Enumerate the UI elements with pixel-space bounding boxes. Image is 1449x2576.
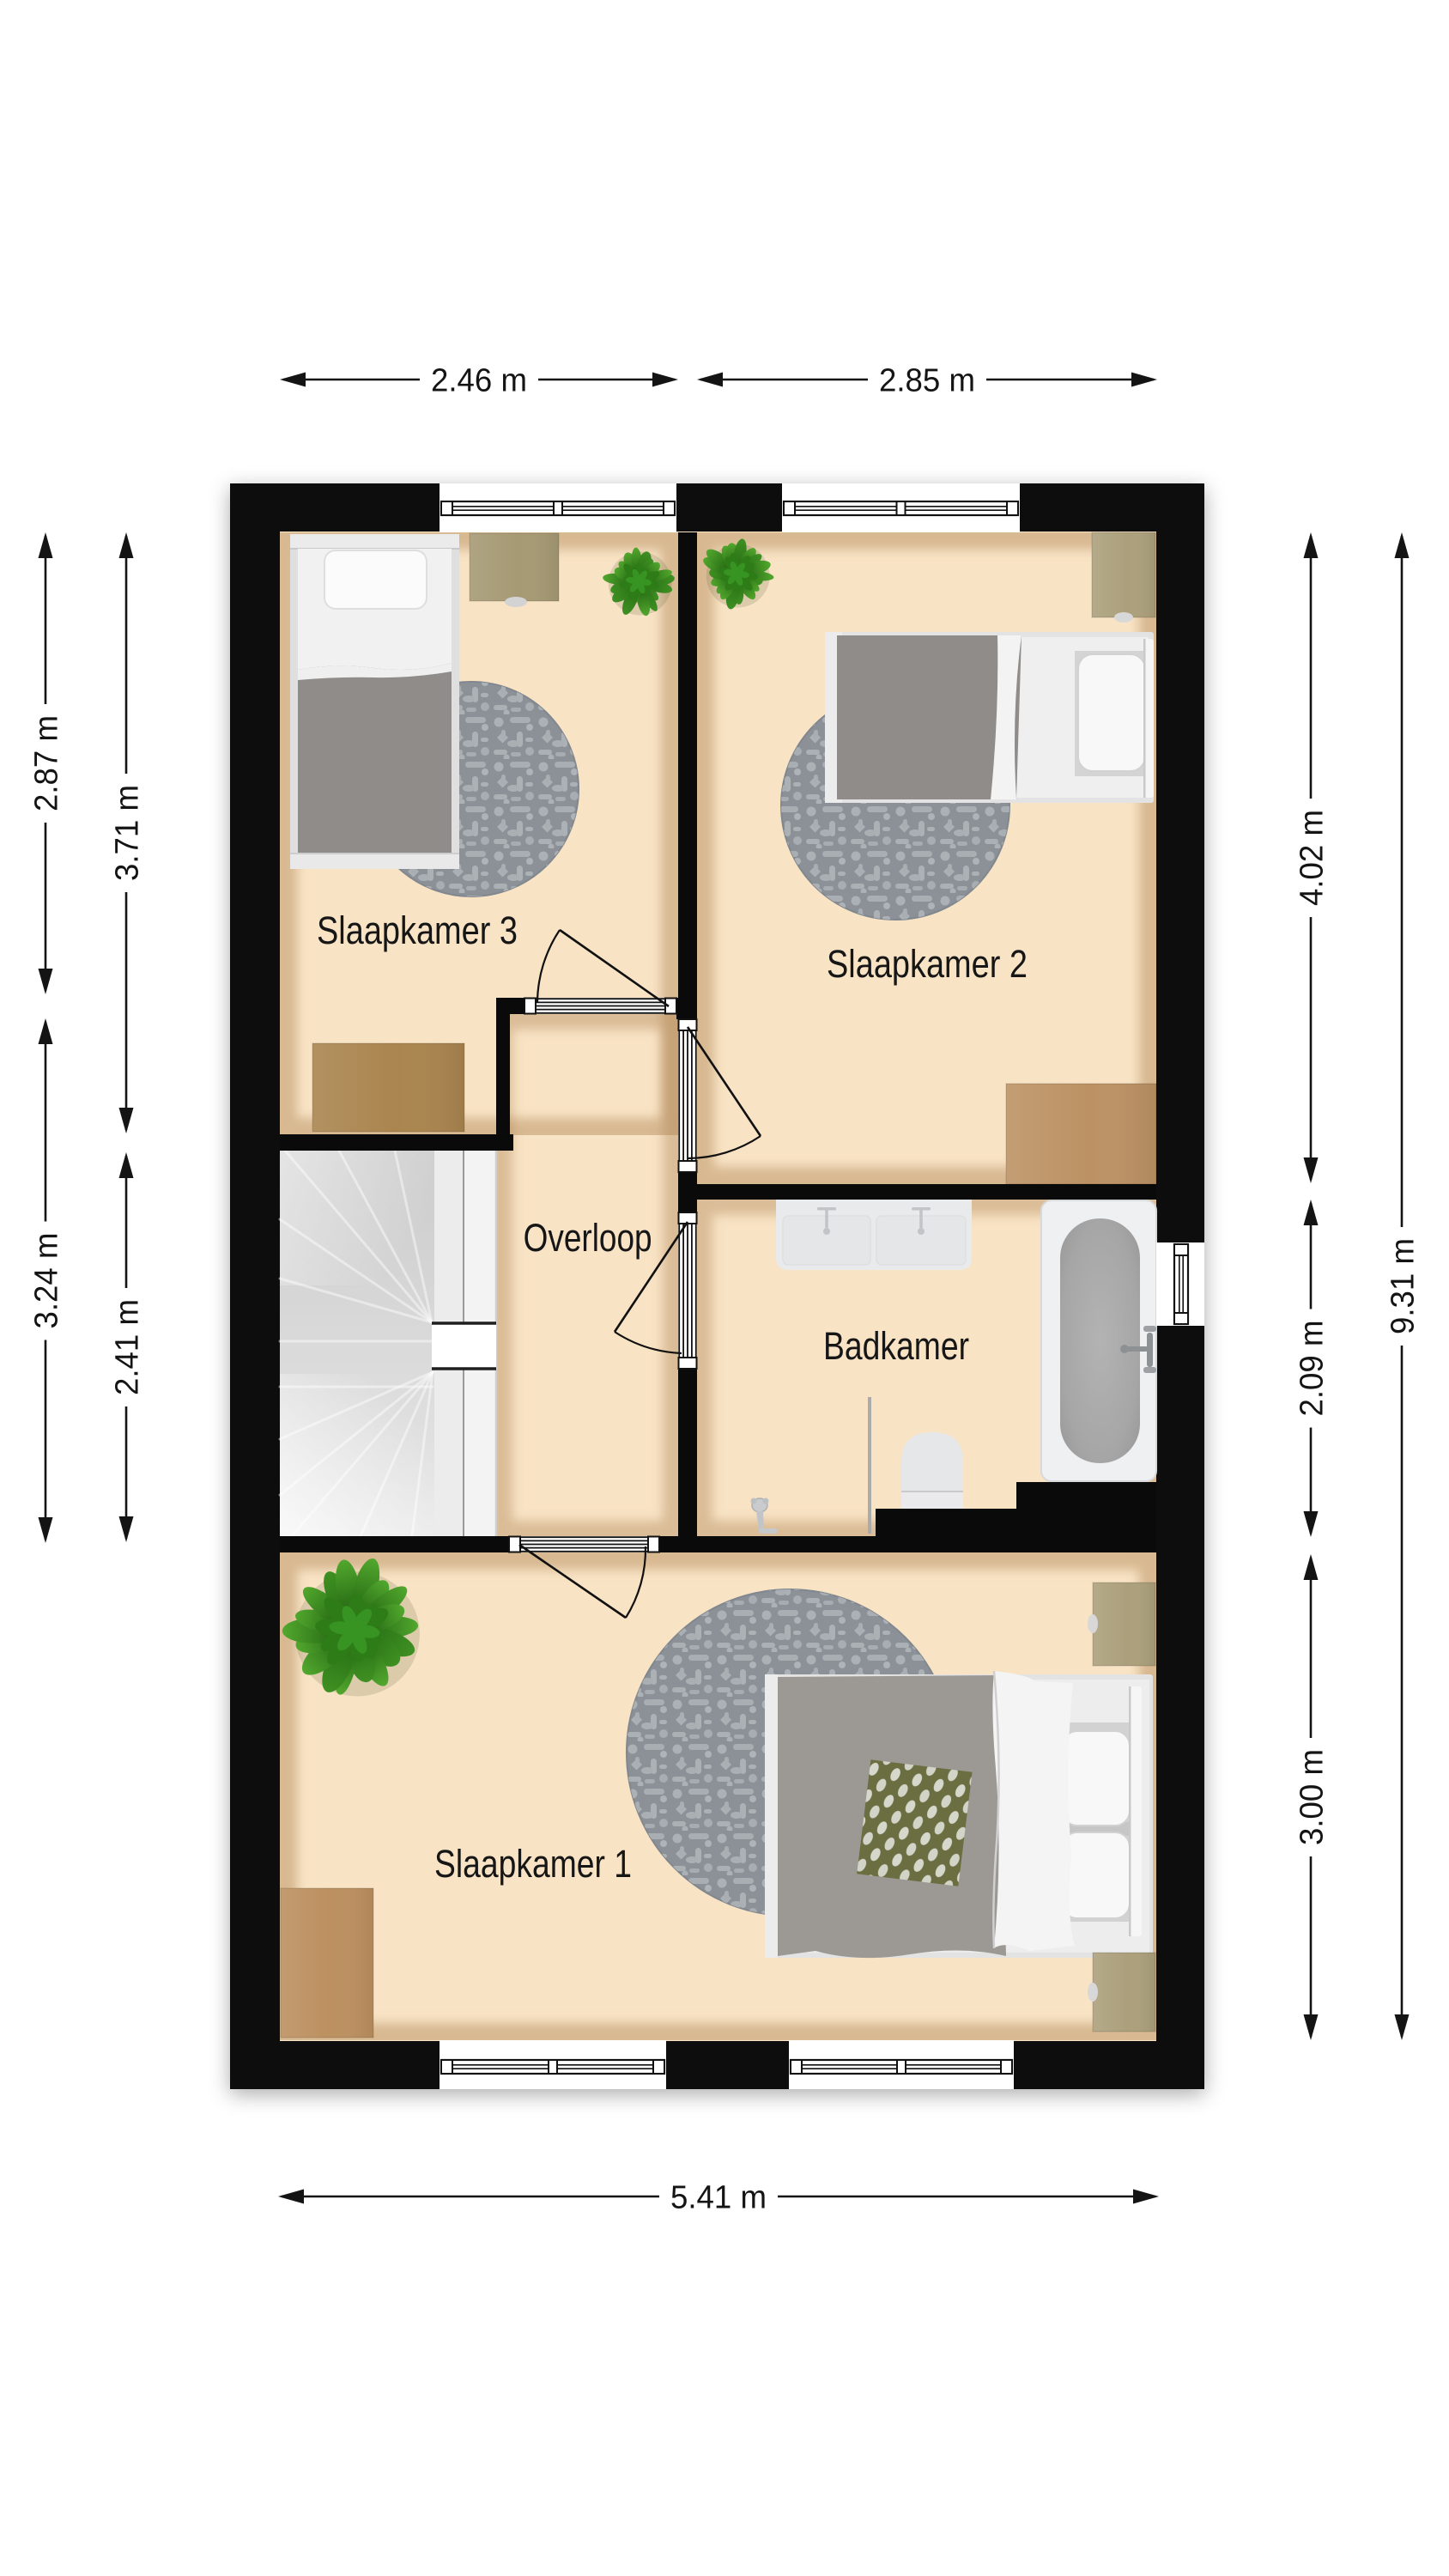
svg-text:2.09 m: 2.09 m <box>1294 1321 1331 1417</box>
svg-text:2.85 m: 2.85 m <box>879 363 975 399</box>
svg-text:9.31 m: 9.31 m <box>1385 1238 1422 1334</box>
svg-text:Slaapkamer 3: Slaapkamer 3 <box>317 908 518 952</box>
svg-text:2.87 m: 2.87 m <box>29 715 65 811</box>
svg-text:5.41 m: 5.41 m <box>670 2180 767 2216</box>
svg-text:Slaapkamer 1: Slaapkamer 1 <box>434 1842 632 1886</box>
svg-text:Slaapkamer 2: Slaapkamer 2 <box>827 942 1028 986</box>
svg-text:Badkamer: Badkamer <box>823 1324 969 1368</box>
svg-text:2.41 m: 2.41 m <box>110 1299 146 1395</box>
svg-text:3.00 m: 3.00 m <box>1294 1749 1331 1845</box>
svg-text:3.24 m: 3.24 m <box>29 1233 65 1329</box>
svg-text:Overloop: Overloop <box>524 1216 652 1260</box>
svg-text:4.02 m: 4.02 m <box>1294 810 1331 906</box>
svg-text:2.46 m: 2.46 m <box>431 363 527 399</box>
svg-text:3.71 m: 3.71 m <box>110 785 146 881</box>
